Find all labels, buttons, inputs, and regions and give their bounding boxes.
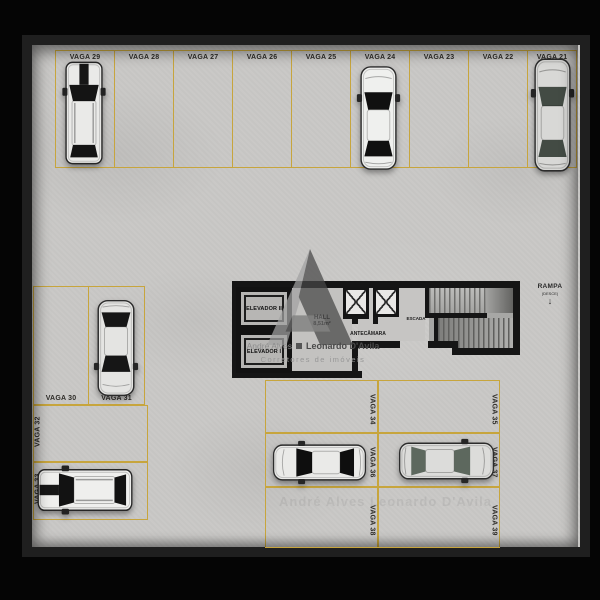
wall-segment [352,341,400,348]
garage-floor-plan: VAGA 29 VAGA 28 VAGA 27 VAGA 26 VAGA 25 … [0,0,600,600]
spot-label: VAGA 32 [35,421,42,447]
ghost-agent-right: Leonardo D'Avila [370,494,492,509]
floor-ghost-watermark: André Alves Leonardo D'Avila [278,494,493,509]
ramp-down-arrow-icon: ↓ [528,297,572,305]
spot-label: VAGA 27 [188,54,219,61]
spot-label: VAGA 36 [369,447,376,473]
spot-label: VAGA 34 [369,394,376,420]
parking-spot-vaga-23: VAGA 23 [409,50,469,168]
wall-segment [425,288,429,315]
ramp-label: RAMPA [528,283,572,290]
stair-landing [486,288,513,313]
ramp-label-group: RAMPA (DESCE) ↓ [528,283,572,305]
parking-spot-vaga-26: VAGA 26 [232,50,292,168]
car-vaga-37 [397,437,496,485]
spot-label: VAGA 28 [129,54,160,61]
spot-label: VAGA 25 [306,54,337,61]
wall-segment [513,281,520,355]
parking-spot-vaga-30: VAGA 30 [33,286,89,405]
wall-segment [452,348,520,355]
car-vaga-29 [61,60,107,166]
car-vaga-33 [36,464,134,516]
parking-spot-vaga-28: VAGA 28 [114,50,174,168]
car-vaga-36 [271,439,368,486]
car-vaga-31 [92,298,140,398]
elevator-2-cab: ELEVADOR II [241,292,287,325]
antechamber-label: ANTECÂMARA [340,331,396,337]
parking-spot-vaga-32: VAGA 32 [33,405,148,462]
car-vaga-21 [529,56,576,174]
wall-segment [434,318,438,348]
elevator-2-label: ELEVADOR II [246,306,282,312]
stair-flight-upper [429,288,486,313]
duct-shaft-icon [373,287,399,317]
spot-label: VAGA 24 [365,54,396,61]
spot-label: VAGA 23 [424,54,455,61]
parking-spot-vaga-25: VAGA 25 [291,50,351,168]
car-vaga-24 [355,64,402,172]
spot-label: VAGA 22 [483,54,514,61]
parking-spot-vaga-35: VAGA 35 [378,380,500,433]
elevator-1-cab: ELEVADOR I [241,335,287,368]
hall-area: 8,51m² [294,321,350,327]
parking-spot-vaga-34: VAGA 34 [265,380,378,433]
stairs-label: ESCADA [402,316,430,321]
elevator-2-shaft: ELEVADOR II [236,287,292,330]
parking-spot-vaga-22: VAGA 22 [468,50,528,168]
elevator-1-shaft: ELEVADOR I [236,330,292,373]
spot-label: VAGA 30 [46,395,77,402]
ghost-agent-left: André Alves [279,494,365,509]
elevator-1-label: ELEVADOR I [247,349,281,355]
spot-label: VAGA 26 [247,54,278,61]
spot-label: VAGA 35 [491,394,498,420]
duct-shaft-icon [343,287,369,317]
hall-label-group: HALL 8,51m² [294,315,350,327]
parking-spot-vaga-27: VAGA 27 [173,50,233,168]
